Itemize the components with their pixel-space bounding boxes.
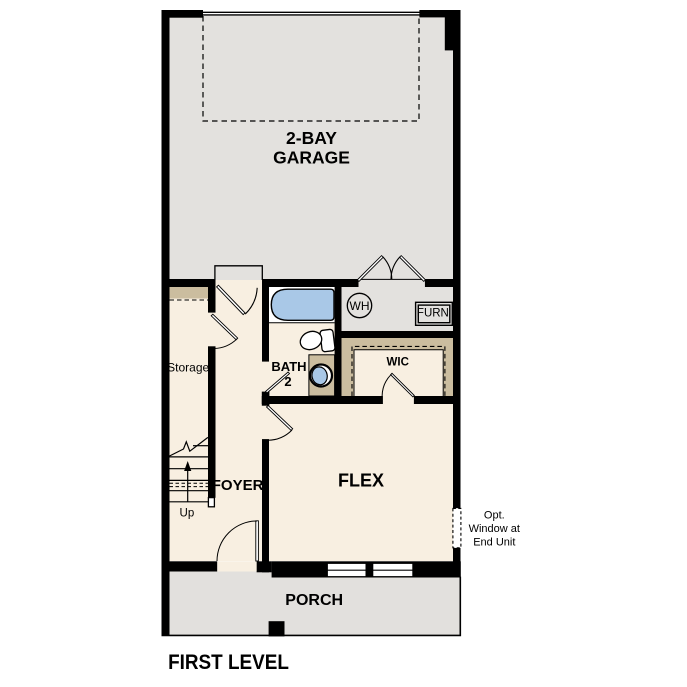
svg-text:Storage: Storage — [167, 361, 209, 375]
svg-text:GARAGE: GARAGE — [273, 148, 350, 168]
svg-text:PORCH: PORCH — [285, 592, 343, 609]
svg-text:End Unit: End Unit — [473, 537, 515, 549]
svg-text:Up: Up — [180, 508, 195, 520]
svg-text:2: 2 — [284, 374, 291, 389]
svg-text:FURN: FURN — [417, 307, 449, 319]
svg-text:FOYER: FOYER — [212, 477, 264, 494]
svg-text:Opt.: Opt. — [484, 510, 505, 522]
svg-text:FLEX: FLEX — [338, 470, 384, 490]
svg-text:BATH: BATH — [271, 359, 306, 374]
svg-text:2-BAY: 2-BAY — [286, 128, 337, 148]
svg-text:WIC: WIC — [387, 357, 409, 369]
svg-text:WH: WH — [350, 299, 370, 313]
svg-text:FIRST LEVEL: FIRST LEVEL — [168, 651, 289, 674]
svg-text:Window at: Window at — [469, 523, 520, 535]
